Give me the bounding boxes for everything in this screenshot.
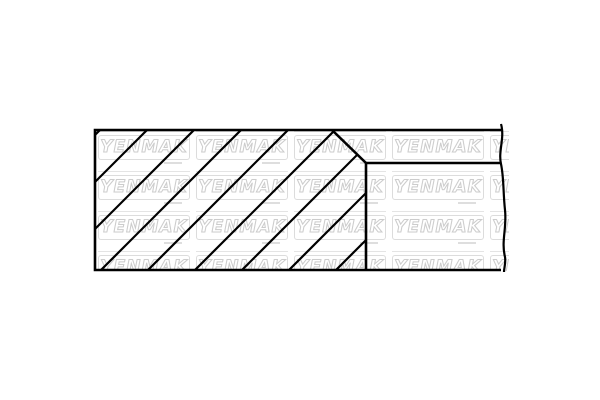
drawing-outline <box>95 130 501 270</box>
hatch-line <box>256 10 596 350</box>
hatch-line <box>0 10 220 350</box>
ring-chamfer-line <box>332 130 366 163</box>
piston-ring-diagram-canvas: YENMAKYENMAKYENMAKYENMAKYENMAKYENMAKYENM… <box>0 0 600 400</box>
hatch-line <box>0 10 267 350</box>
hatch-line <box>115 10 455 350</box>
hatch-line <box>162 10 502 350</box>
break-line-edge <box>500 124 505 272</box>
hatch-line <box>209 10 549 350</box>
hatch-line <box>0 10 314 350</box>
hatch-group <box>0 10 596 350</box>
hatch-line <box>68 10 408 350</box>
hatch-line <box>21 10 361 350</box>
ring-cross-section-drawing <box>0 0 600 400</box>
